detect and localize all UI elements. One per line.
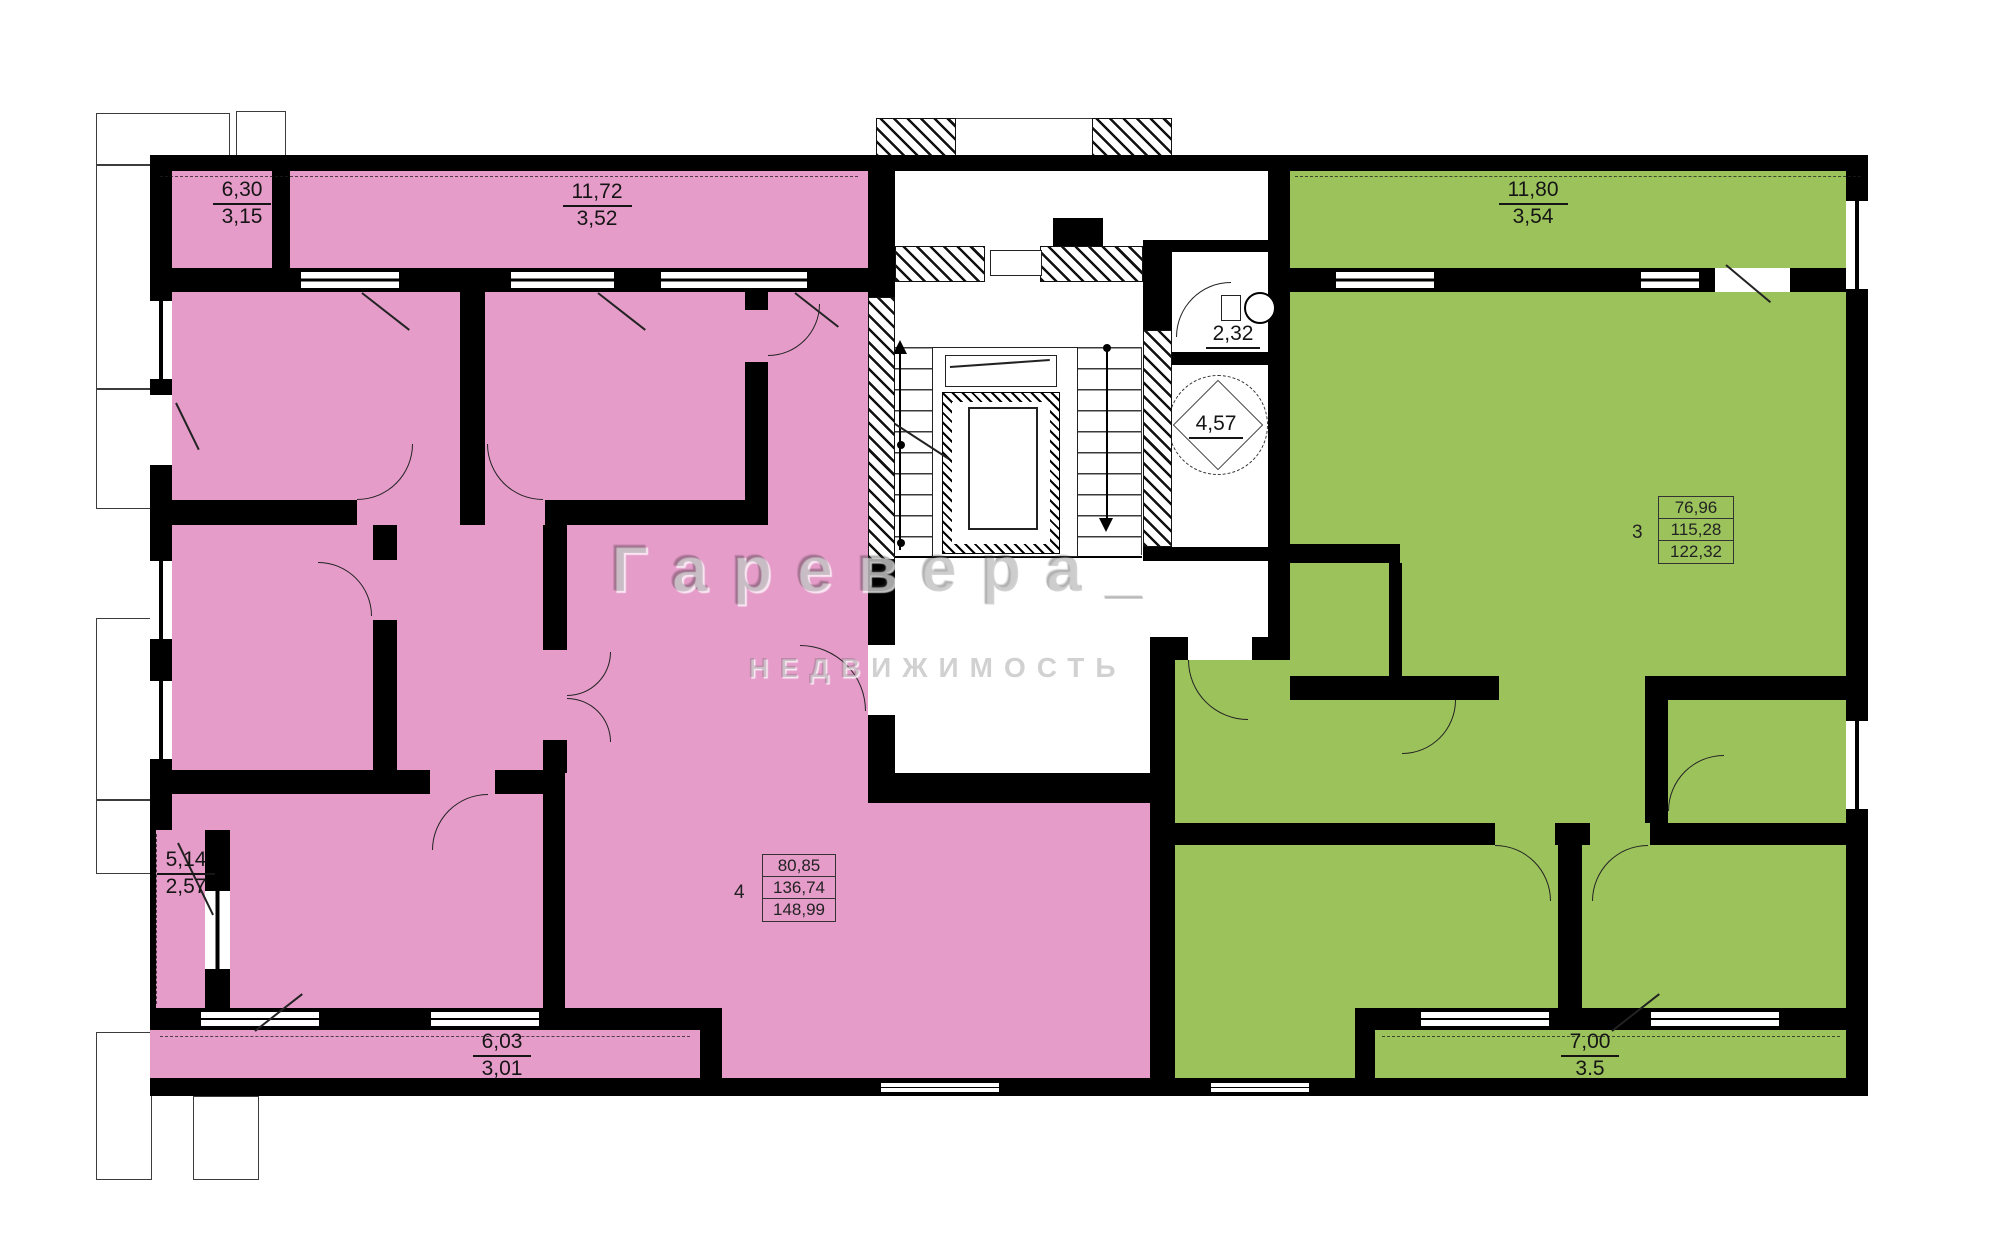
- balcony-area-reduced: 3,15: [200, 205, 284, 229]
- apartment-3-area-upper: [1290, 268, 1846, 660]
- wall-green-rooms-divider: [1558, 845, 1582, 1008]
- watermark-subtitle: НЕДВИЖИМОСТЬ: [748, 652, 1126, 684]
- window: [150, 680, 172, 760]
- wall-hall-top-b: [545, 500, 745, 525]
- wall-bedroom2-right-b: [745, 362, 768, 525]
- window: [880, 1083, 1000, 1092]
- balcony-area: 11,80: [1499, 178, 1568, 205]
- balcony-label-top-right: 11,80 3,54: [1488, 178, 1578, 229]
- balcony-door-opening: [150, 395, 172, 465]
- window: [660, 272, 808, 288]
- outline-box: [96, 1032, 152, 1180]
- window: [1650, 1012, 1780, 1026]
- wall-vestibule-b: [1252, 637, 1290, 660]
- wall-green-bath-right: [1389, 563, 1402, 676]
- stairwell-window: [990, 250, 1042, 276]
- wall-kitchen-right-a: [373, 525, 397, 560]
- stair-dot: [1103, 344, 1111, 352]
- elevator-label: 4,57: [1180, 412, 1252, 439]
- wall-bedroom3-top-a: [150, 770, 430, 794]
- window: [1640, 272, 1700, 288]
- window: [200, 1012, 320, 1026]
- wall-outer-right: [1846, 155, 1868, 1096]
- apartment-3-room-count: 3: [1632, 522, 1643, 544]
- wall-corridor-right: [1150, 660, 1175, 773]
- wall-hatch-stair-top-a: [895, 246, 985, 282]
- apartment-4-living-area: 80,85: [763, 855, 835, 877]
- window: [510, 272, 615, 288]
- wall-stairwell-left-top: [868, 171, 895, 297]
- balcony-dashed-line: [1295, 176, 1861, 177]
- wall-stairwell-left-b: [868, 715, 895, 775]
- window: [1210, 1083, 1310, 1092]
- wall-green-rooms-top-b: [1555, 823, 1590, 845]
- wall-stairwell-right: [1268, 155, 1290, 660]
- outline-box: [96, 389, 152, 509]
- outline-box: [96, 618, 152, 800]
- wall-apartments-divider: [1150, 773, 1175, 1078]
- wall-green-mid-a: [1290, 676, 1499, 700]
- wall-corridor-bottom: [868, 773, 1175, 803]
- window: [1420, 1012, 1550, 1026]
- wall-hatch-stair-left: [868, 297, 895, 560]
- wall-hatch-stair-top-b: [1040, 246, 1143, 282]
- stair-arrow-line: [1106, 350, 1108, 522]
- balcony-area: 7,00: [1561, 1030, 1620, 1057]
- wall-living-stub: [700, 1008, 722, 1078]
- outline-box: [193, 1096, 259, 1180]
- apartment-4-area-table: 80,85 136,74 148,99: [762, 854, 836, 922]
- balcony-area-reduced: 3,01: [460, 1057, 544, 1081]
- stair-arrow-line: [899, 350, 901, 550]
- window: [150, 300, 172, 380]
- window: [300, 272, 400, 288]
- balcony-area: 6,30: [213, 178, 272, 205]
- balcony-label-top-left: 6,30 3,15: [200, 178, 284, 229]
- wall-green-rooms-top-a: [1175, 823, 1495, 845]
- window: [430, 1012, 540, 1026]
- toilet-bowl-icon: [1244, 292, 1276, 324]
- wall-refuse-top: [1143, 240, 1268, 252]
- wall-bedroom2-right-a: [745, 292, 768, 310]
- balcony-area: 6,03: [473, 1030, 532, 1057]
- apartment-3-living-area: 76,96: [1659, 497, 1733, 519]
- stair-dot: [897, 441, 905, 449]
- apartment-3-balcony-top: [1290, 163, 1868, 268]
- watermark-brand: Гаревера_: [610, 530, 1166, 606]
- balcony-dashed-line: [160, 1036, 690, 1037]
- wall-hall-living-b: [543, 740, 567, 773]
- wall-green-mid-b: [1645, 676, 1846, 700]
- apartment-4-total-area: 148,99: [763, 899, 835, 921]
- balcony-label-top-middle: 11,72 3,52: [552, 180, 642, 231]
- apartment-4-balcony-bottom: [150, 1030, 700, 1078]
- window: [150, 560, 172, 640]
- window: [1846, 200, 1868, 290]
- wall-kitchen-right-b: [373, 620, 397, 770]
- wall-green-balcony-stub: [1355, 1008, 1375, 1078]
- wall-bedrooms-divider: [460, 292, 485, 525]
- apartment-4-room-count: 4: [734, 882, 745, 904]
- apartment-3-area-table: 76,96 115,28 122,32: [1658, 496, 1734, 564]
- canopy-hatch: [1092, 118, 1172, 158]
- wall-green-hall-right: [1645, 700, 1668, 823]
- window: [205, 890, 230, 970]
- wall-bedroom3-right: [543, 794, 565, 1008]
- balcony-area: 5,14: [157, 848, 216, 875]
- floor-plan: Гаревера_ НЕДВИЖИМОСТЬ 6,30 3,15 11,72 3…: [0, 0, 2000, 1237]
- wall-bedroom3-top-b: [495, 770, 565, 794]
- wall-hall-top-a: [150, 500, 357, 525]
- balcony-label-left: 5,14 2,57: [144, 848, 228, 899]
- elevator-cab: [968, 407, 1038, 530]
- apartment-4-living-lower: [700, 1008, 1150, 1078]
- window: [1335, 272, 1435, 288]
- balcony-area-reduced: 3.5: [1548, 1057, 1632, 1081]
- balcony-label-bottom-left: 6,03 3,01: [460, 1030, 544, 1081]
- balcony-area-reduced: 2,57: [144, 875, 228, 899]
- apartment-4-area: 136,74: [763, 877, 835, 899]
- wall-hatch-stair-right: [1143, 330, 1172, 547]
- apartment-3-area: 115,28: [1659, 519, 1733, 541]
- wall-green-bath-top: [1290, 544, 1400, 563]
- balcony-area: 11,72: [563, 180, 632, 207]
- window: [1846, 720, 1868, 810]
- stair-arrow-up: [893, 340, 907, 354]
- wall-green-rooms-top-c: [1650, 823, 1868, 845]
- balcony-area-reduced: 3,54: [1488, 205, 1578, 229]
- apartment-3-room-lower: [1175, 1008, 1355, 1078]
- outline-box: [96, 165, 152, 389]
- wall-refuse-elevator: [1172, 352, 1268, 365]
- balcony-label-bottom-right: 7,00 3.5: [1548, 1030, 1632, 1081]
- wall-outer-top: [150, 155, 1868, 171]
- canopy-hatch: [876, 118, 956, 158]
- apartment-3-total-area: 122,32: [1659, 541, 1733, 563]
- balcony-area-reduced: 3,52: [552, 207, 642, 231]
- wall-vestibule-a: [1150, 637, 1188, 660]
- wall-hall-living-a: [543, 525, 567, 650]
- balcony-dashed-line: [160, 176, 858, 177]
- refuse-room-label: 2,32: [1198, 322, 1268, 349]
- apartment-4-area-lower: [172, 773, 1150, 1008]
